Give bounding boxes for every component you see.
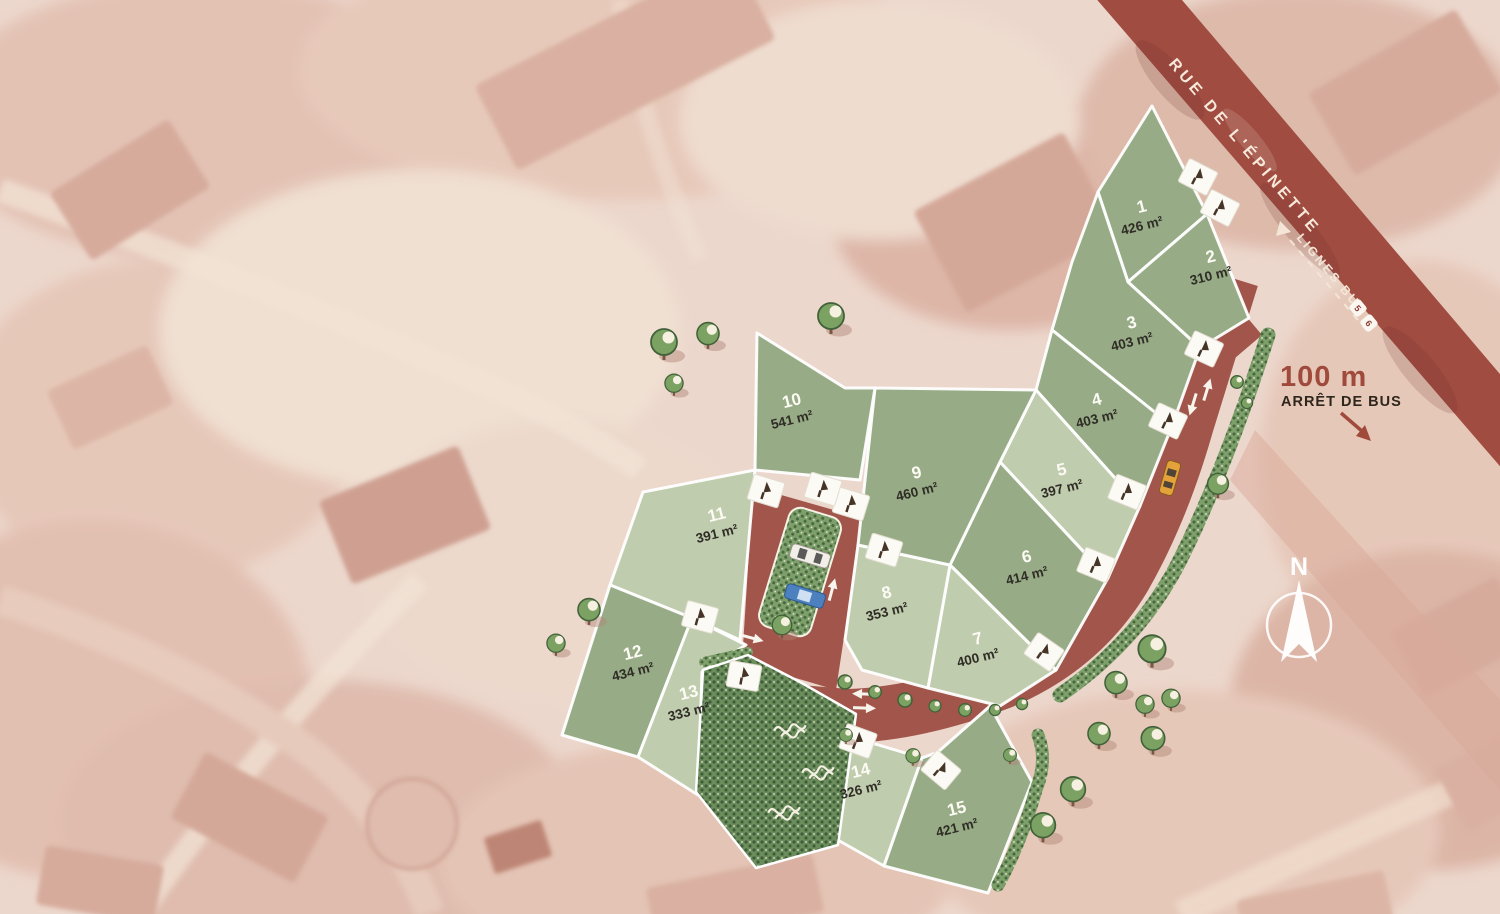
bush-icon <box>989 704 1000 715</box>
driveway-marker-icon <box>726 660 762 691</box>
bus-stop-distance-label: 100 m <box>1280 361 1367 393</box>
bush-icon <box>898 693 912 707</box>
bush-icon <box>869 686 882 699</box>
north-label: N <box>1290 553 1308 581</box>
bush-icon <box>1016 698 1027 709</box>
bush-icon <box>1241 397 1252 408</box>
bush-icon <box>959 704 972 717</box>
bush-icon <box>1231 376 1244 389</box>
bus-stop-label: ARRÊT DE BUS <box>1281 392 1402 410</box>
site-plan-canvas: 1 426 m² 2 310 m² 3 403 m² 4 403 m² 5 39… <box>0 0 1500 914</box>
site-plan-map: 1 426 m² 2 310 m² 3 403 m² 4 403 m² 5 39… <box>0 0 1500 914</box>
bush-icon <box>929 700 941 712</box>
bush-icon <box>838 675 852 689</box>
